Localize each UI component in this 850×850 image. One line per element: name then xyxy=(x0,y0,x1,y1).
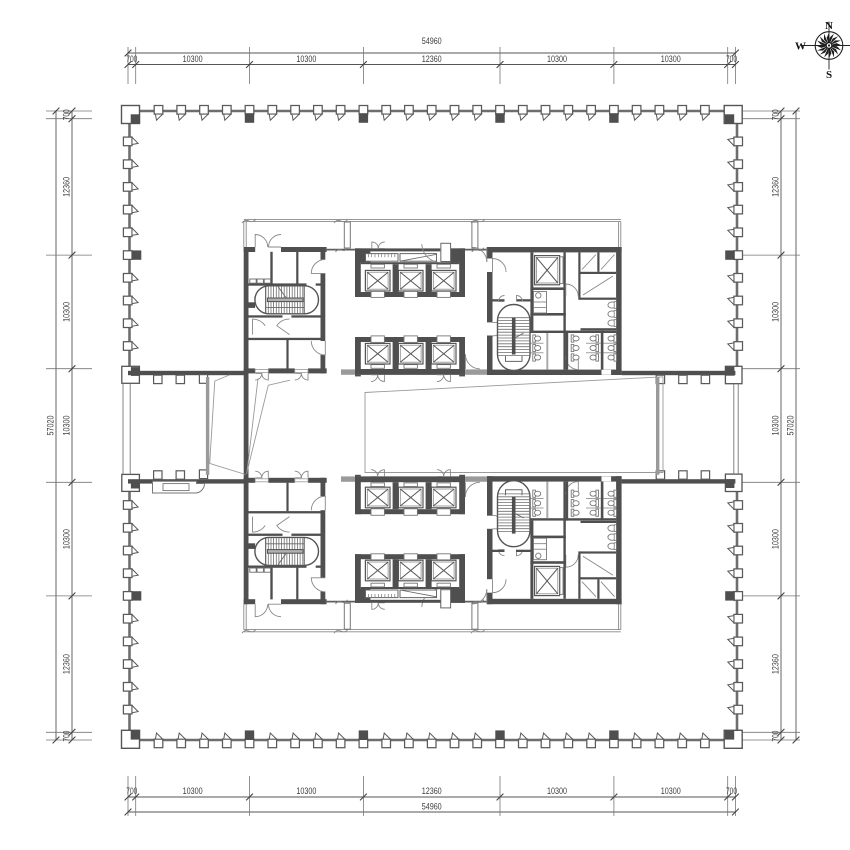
svg-text:10300: 10300 xyxy=(296,54,316,64)
svg-text:57020: 57020 xyxy=(46,416,56,436)
svg-text:54960: 54960 xyxy=(422,802,442,812)
svg-text:W: W xyxy=(795,40,806,52)
svg-text:10300: 10300 xyxy=(183,54,203,64)
svg-text:S: S xyxy=(826,69,832,81)
svg-text:700: 700 xyxy=(126,786,137,796)
svg-text:10300: 10300 xyxy=(771,529,781,549)
svg-text:700: 700 xyxy=(771,109,781,120)
svg-text:10300: 10300 xyxy=(547,786,567,796)
svg-text:10300: 10300 xyxy=(771,416,781,436)
svg-text:10300: 10300 xyxy=(661,786,681,796)
svg-text:700: 700 xyxy=(62,109,72,120)
svg-text:10300: 10300 xyxy=(62,302,72,322)
svg-text:10300: 10300 xyxy=(771,302,781,322)
svg-text:10300: 10300 xyxy=(183,786,203,796)
svg-text:12360: 12360 xyxy=(771,654,781,674)
svg-text:12360: 12360 xyxy=(422,54,442,64)
svg-text:10300: 10300 xyxy=(547,54,567,64)
svg-text:12360: 12360 xyxy=(62,654,72,674)
svg-text:700: 700 xyxy=(726,786,737,796)
svg-text:10300: 10300 xyxy=(62,416,72,436)
svg-text:57020: 57020 xyxy=(786,416,796,436)
svg-text:10300: 10300 xyxy=(661,54,681,64)
svg-text:54960: 54960 xyxy=(422,36,442,46)
svg-text:700: 700 xyxy=(771,731,781,742)
svg-text:12360: 12360 xyxy=(771,177,781,197)
svg-text:10300: 10300 xyxy=(62,529,72,549)
svg-text:700: 700 xyxy=(126,54,137,64)
svg-text:12360: 12360 xyxy=(422,786,442,796)
svg-text:N: N xyxy=(825,20,833,32)
svg-text:700: 700 xyxy=(726,54,737,64)
svg-text:700: 700 xyxy=(62,731,72,742)
svg-text:10300: 10300 xyxy=(296,786,316,796)
svg-text:12360: 12360 xyxy=(62,177,72,197)
